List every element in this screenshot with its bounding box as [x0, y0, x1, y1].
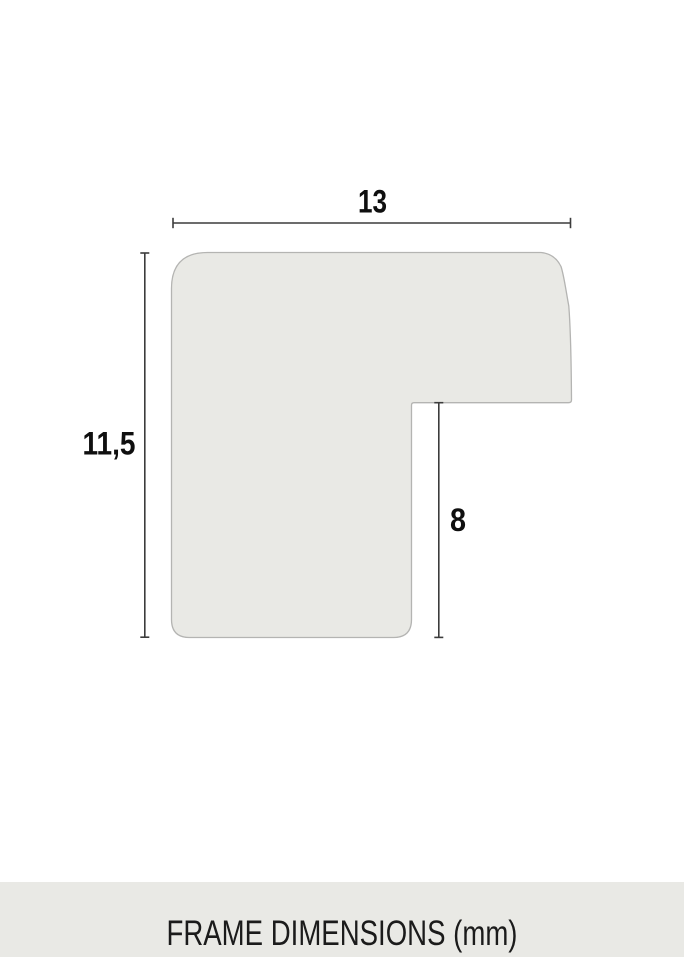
svg-text:8: 8 — [450, 502, 466, 538]
svg-text:FRAME DIMENSIONS (mm): FRAME DIMENSIONS (mm) — [167, 914, 518, 953]
svg-text:13: 13 — [358, 184, 387, 220]
svg-text:11,5: 11,5 — [83, 426, 136, 462]
